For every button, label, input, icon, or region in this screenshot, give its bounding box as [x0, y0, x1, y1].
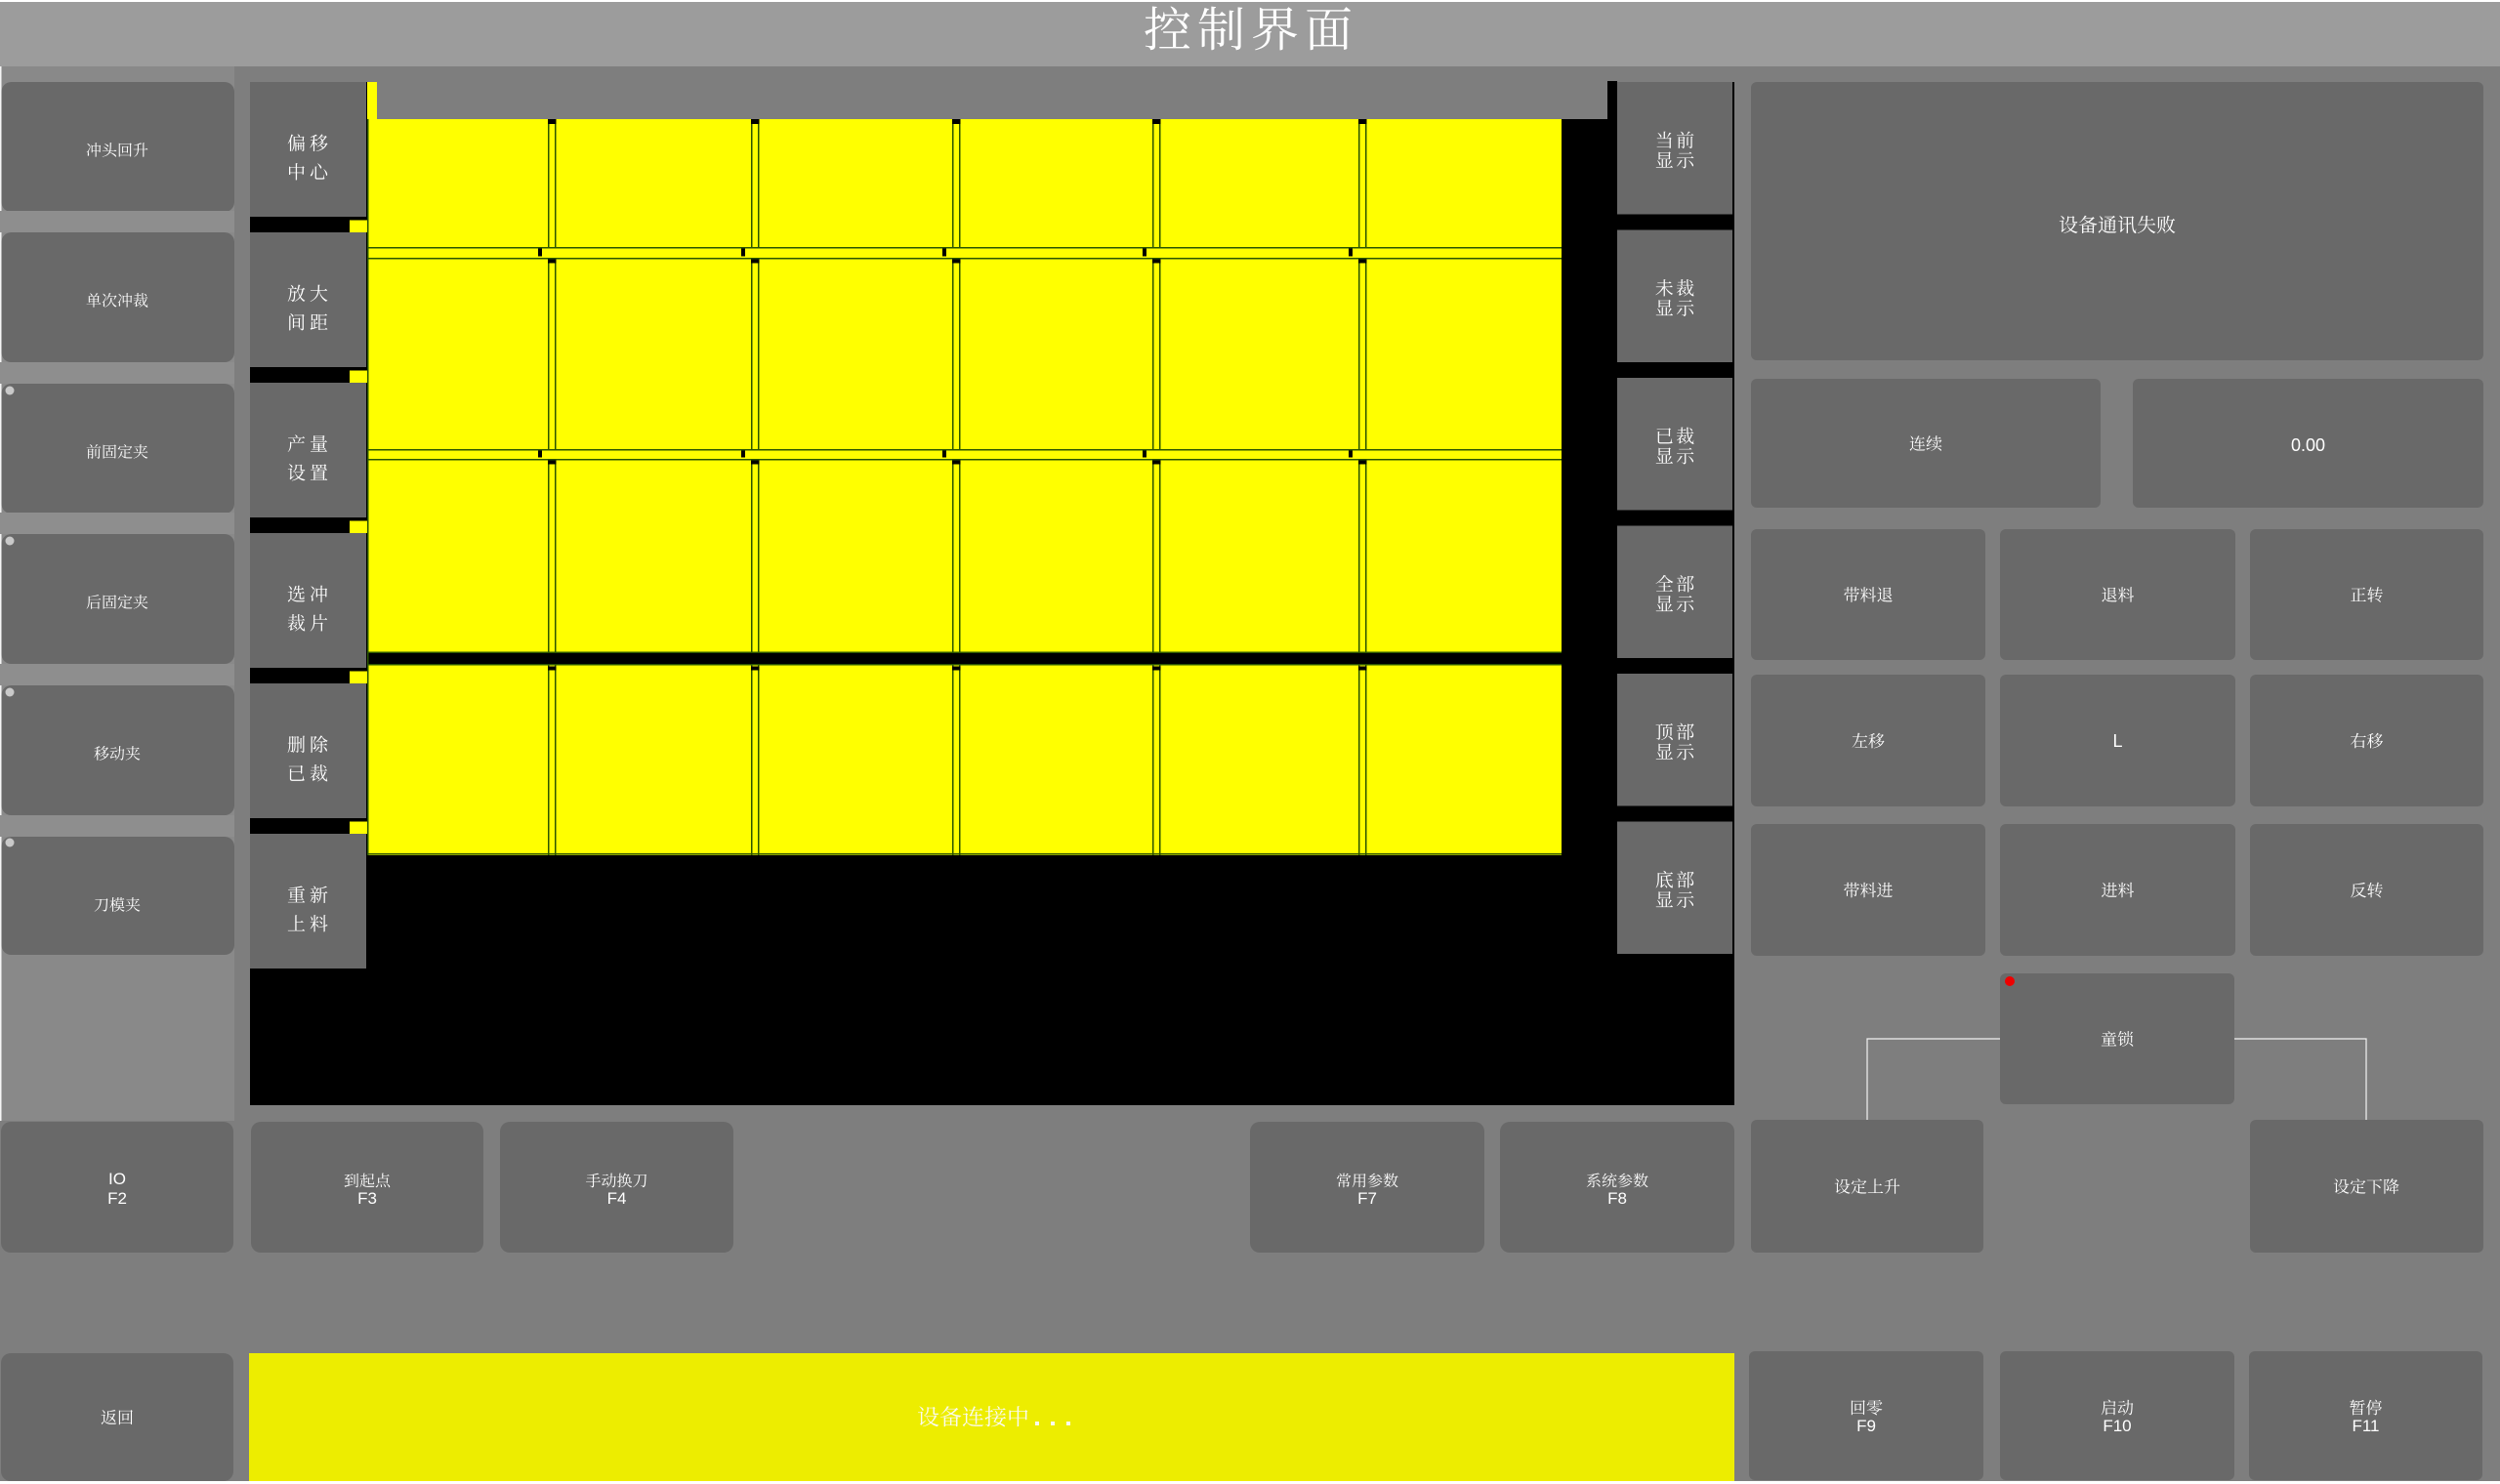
svg-text:L: L [2112, 731, 2122, 751]
svg-text:0.00: 0.00 [2291, 435, 2325, 455]
svg-text:F4: F4 [607, 1189, 627, 1208]
svg-text:F2: F2 [107, 1189, 127, 1208]
svg-text:F8: F8 [1607, 1189, 1627, 1208]
svg-text:F3: F3 [357, 1189, 377, 1208]
svg-text:F10: F10 [2103, 1417, 2131, 1435]
svg-text:IO: IO [108, 1170, 126, 1188]
svg-text:F11: F11 [2352, 1417, 2379, 1435]
svg-text:F9: F9 [1856, 1417, 1876, 1435]
svg-text:F7: F7 [1357, 1189, 1377, 1208]
